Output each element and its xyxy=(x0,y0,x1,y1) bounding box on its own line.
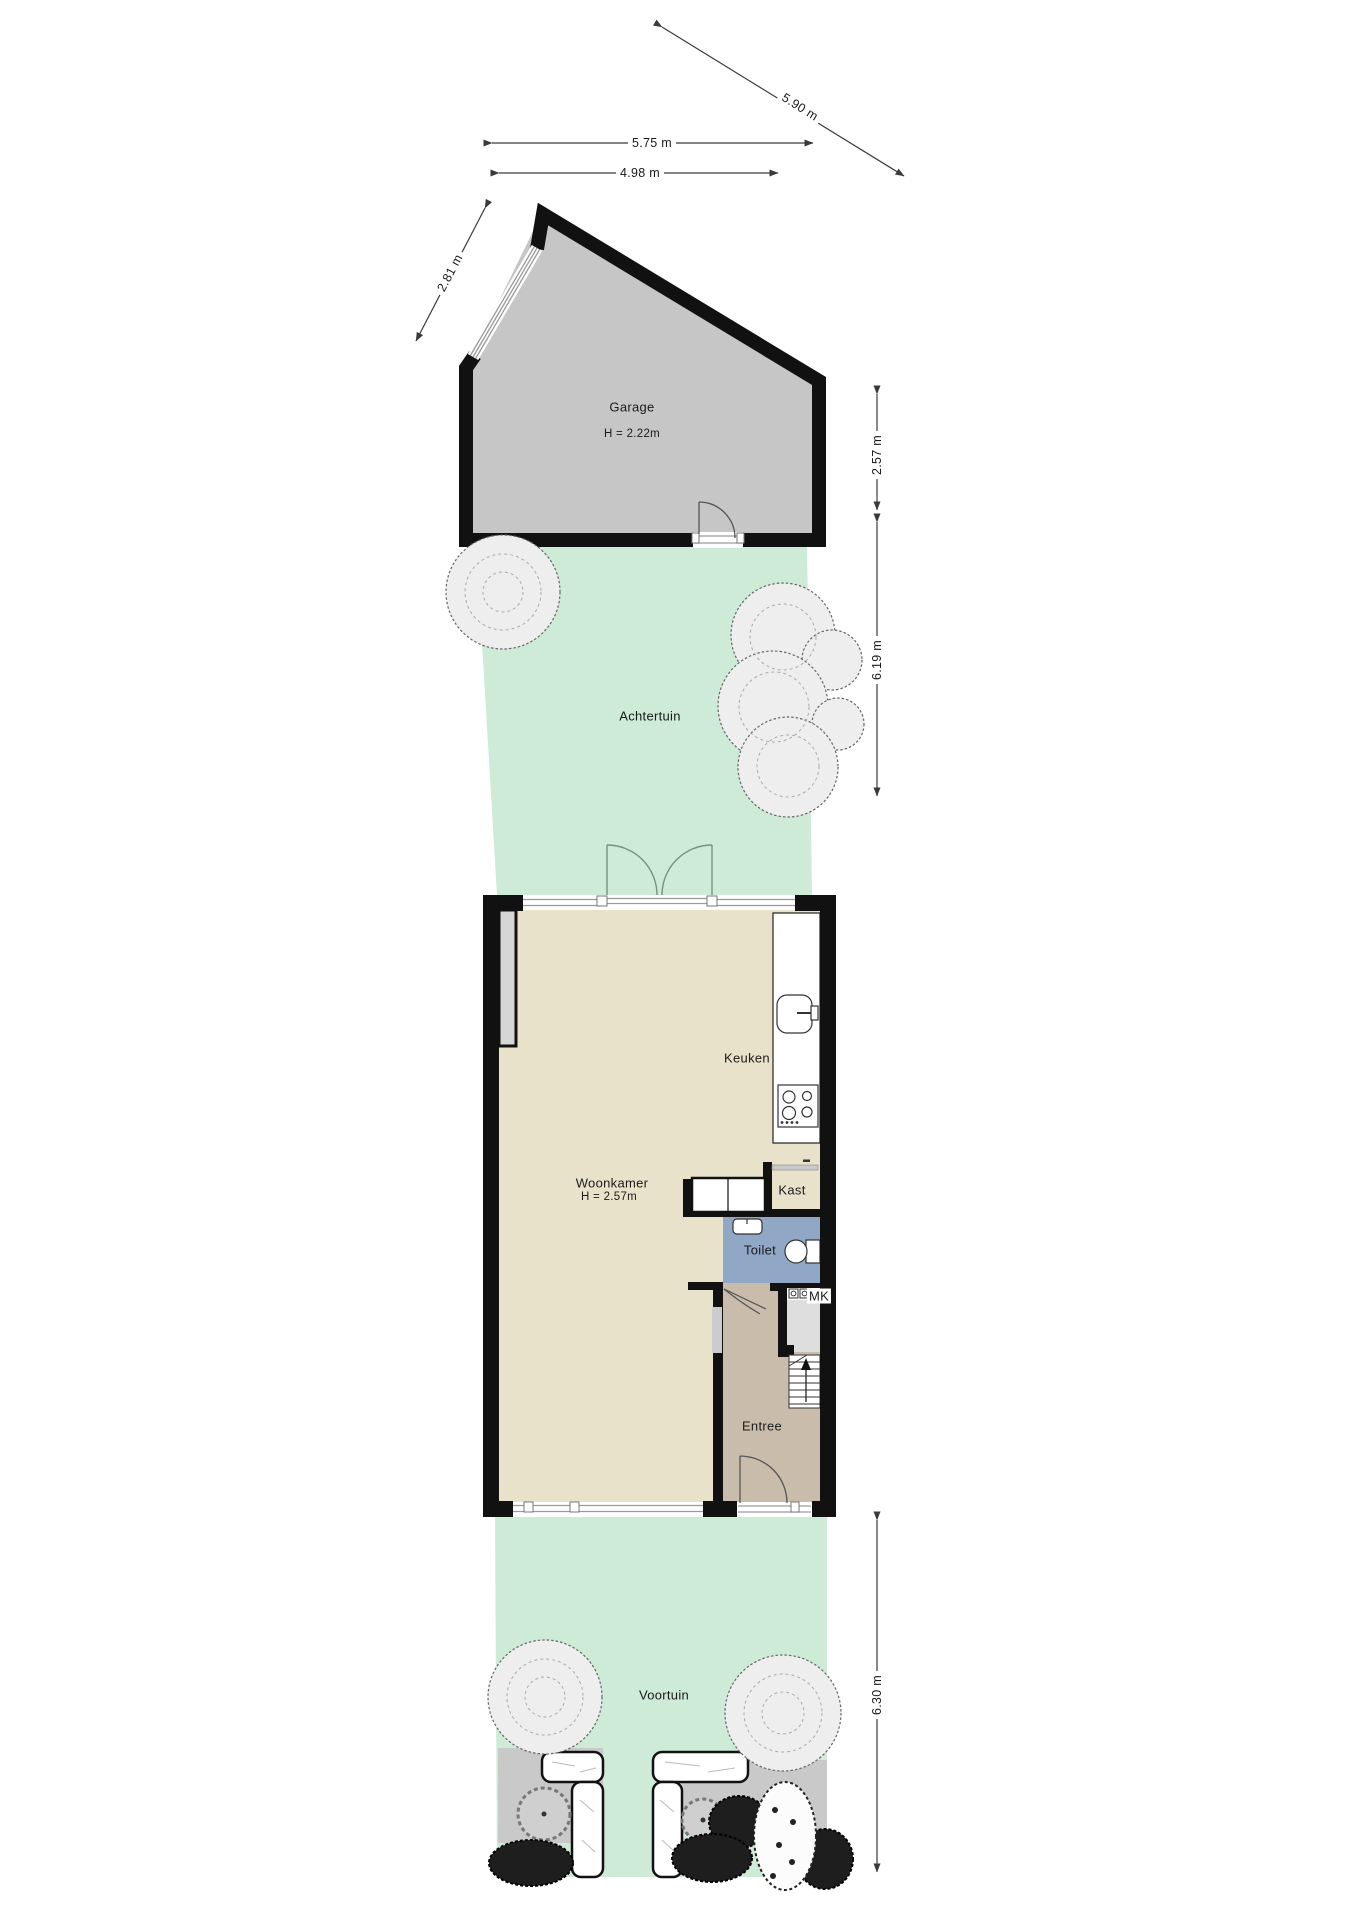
dim-label-voortuin-depth: 6.30 m xyxy=(870,1671,884,1719)
washbasin-icon xyxy=(733,1219,762,1234)
small-dash xyxy=(803,1160,810,1163)
room-label-mk: MK xyxy=(807,1289,831,1304)
mk-floor xyxy=(787,1300,820,1352)
toilet-bowl-icon xyxy=(785,1240,820,1263)
chimney-niche xyxy=(499,910,516,1046)
room-label-entree: Entree xyxy=(742,1419,782,1434)
cabinet-icon xyxy=(692,1178,765,1212)
garage-height-note: H = 2.22m xyxy=(604,428,660,440)
room-label-keuken: Keuken xyxy=(724,1051,770,1066)
stove-icon xyxy=(778,1085,818,1127)
rear-windows xyxy=(523,896,795,910)
kitchen-counter xyxy=(773,913,820,1143)
room-label-toilet: Toilet xyxy=(744,1243,776,1258)
floorplan-drawing xyxy=(0,0,1358,1920)
hatch-strip xyxy=(772,1165,818,1170)
dim-label-achtertuin-depth: 6.19 m xyxy=(870,636,884,684)
garage-structure xyxy=(466,213,819,548)
room-label-achtertuin: Achtertuin xyxy=(619,709,681,724)
dim-label-garage-depth: 2.57 m xyxy=(870,431,884,479)
room-label-kast: Kast xyxy=(778,1183,805,1198)
entree-door-strip xyxy=(712,1307,722,1353)
room-label-woonkamer: Woonkamer xyxy=(576,1176,649,1191)
garage-floor xyxy=(466,213,819,540)
stairs xyxy=(789,1355,820,1408)
dim-label-top-width: 5.75 m xyxy=(628,136,676,150)
dim-label-garage-width: 4.98 m xyxy=(616,166,664,180)
floorplan-canvas: 5.75 m 4.98 m 5.90 m 2.81 m 2.57 m 6.19 … xyxy=(0,0,1358,1920)
woonkamer-height-note: H = 2.57m xyxy=(581,1191,637,1203)
voortuin-area xyxy=(488,1517,853,1890)
room-label-garage: Garage xyxy=(609,400,654,415)
room-label-voortuin: Voortuin xyxy=(639,1688,689,1703)
front-windows xyxy=(513,1502,703,1516)
flower-bush-icon xyxy=(754,1782,816,1890)
house-structure xyxy=(483,895,836,1517)
